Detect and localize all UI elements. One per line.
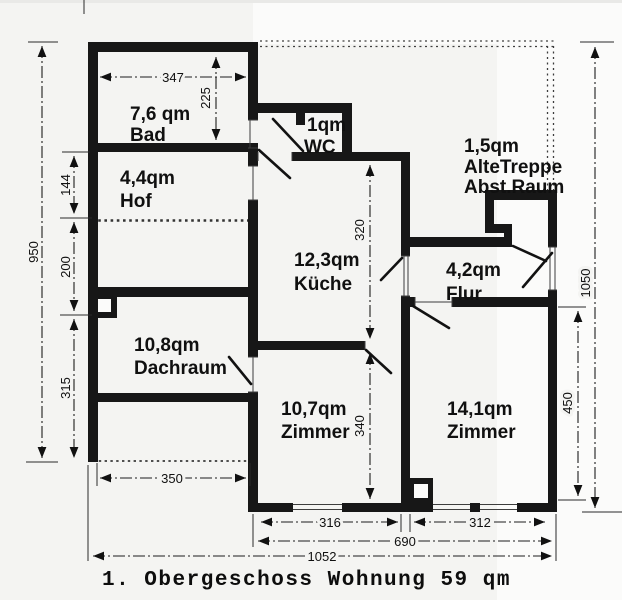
floor-plan-drawing: 347 225 950 144 200 315 320 340 1050 450… [0, 0, 622, 600]
floor-plan-page: 347 225 950 144 200 315 320 340 1050 450… [0, 0, 622, 600]
room-abstraum-name2: Abst.Raum [464, 177, 564, 198]
room-bad-name: Bad [130, 125, 166, 146]
room-zimmer2-area: 14,1qm [447, 399, 512, 420]
dim-hof-height: 144 [58, 174, 73, 196]
dim-dachraum-width: 350 [161, 471, 183, 486]
room-dachraum-area: 10,8qm [134, 335, 199, 356]
room-bad-area: 7,6 qm [130, 104, 190, 125]
room-dachraum-name: Dachraum [134, 358, 227, 379]
dim-bad-width: 347 [162, 70, 184, 85]
dim-zimmer1-height: 340 [352, 415, 367, 437]
room-zimmer1-area: 10,7qm [281, 399, 346, 420]
dim-zimmer2-height: 450 [560, 392, 575, 414]
plan-title: 1. Obergeschoss Wohnung 59 qm [102, 569, 511, 592]
room-flur-area: 4,2qm [446, 260, 501, 281]
dim-zimmer1-width: 316 [319, 515, 341, 530]
dim-left-total-height: 950 [26, 241, 41, 263]
room-kueche-area: 12,3qm [294, 250, 359, 271]
room-flur-name: Flur [446, 284, 482, 305]
room-zimmer2-name: Zimmer [447, 422, 516, 443]
room-wc-area: 1qm [307, 115, 346, 136]
dim-zimmer2-width: 312 [469, 515, 491, 530]
dim-mid-height: 200 [58, 256, 73, 278]
room-wc-name: WC [304, 137, 336, 158]
dim-total-width: 1052 [308, 549, 337, 564]
dim-right-total-height: 1050 [578, 269, 593, 298]
dim-right-width: 690 [394, 534, 416, 549]
room-hof-name: Hof [120, 191, 152, 212]
room-abstraum-area: 1,5qm [464, 136, 519, 157]
room-hof-area: 4,4qm [120, 168, 175, 189]
room-abstraum-name: AlteTreppe [464, 157, 562, 178]
room-zimmer1-name: Zimmer [281, 422, 350, 443]
room-kueche-name: Küche [294, 274, 352, 295]
dim-kueche-height: 320 [352, 219, 367, 241]
dim-dachraum-height: 315 [58, 377, 73, 399]
dim-bad-height: 225 [198, 87, 213, 109]
